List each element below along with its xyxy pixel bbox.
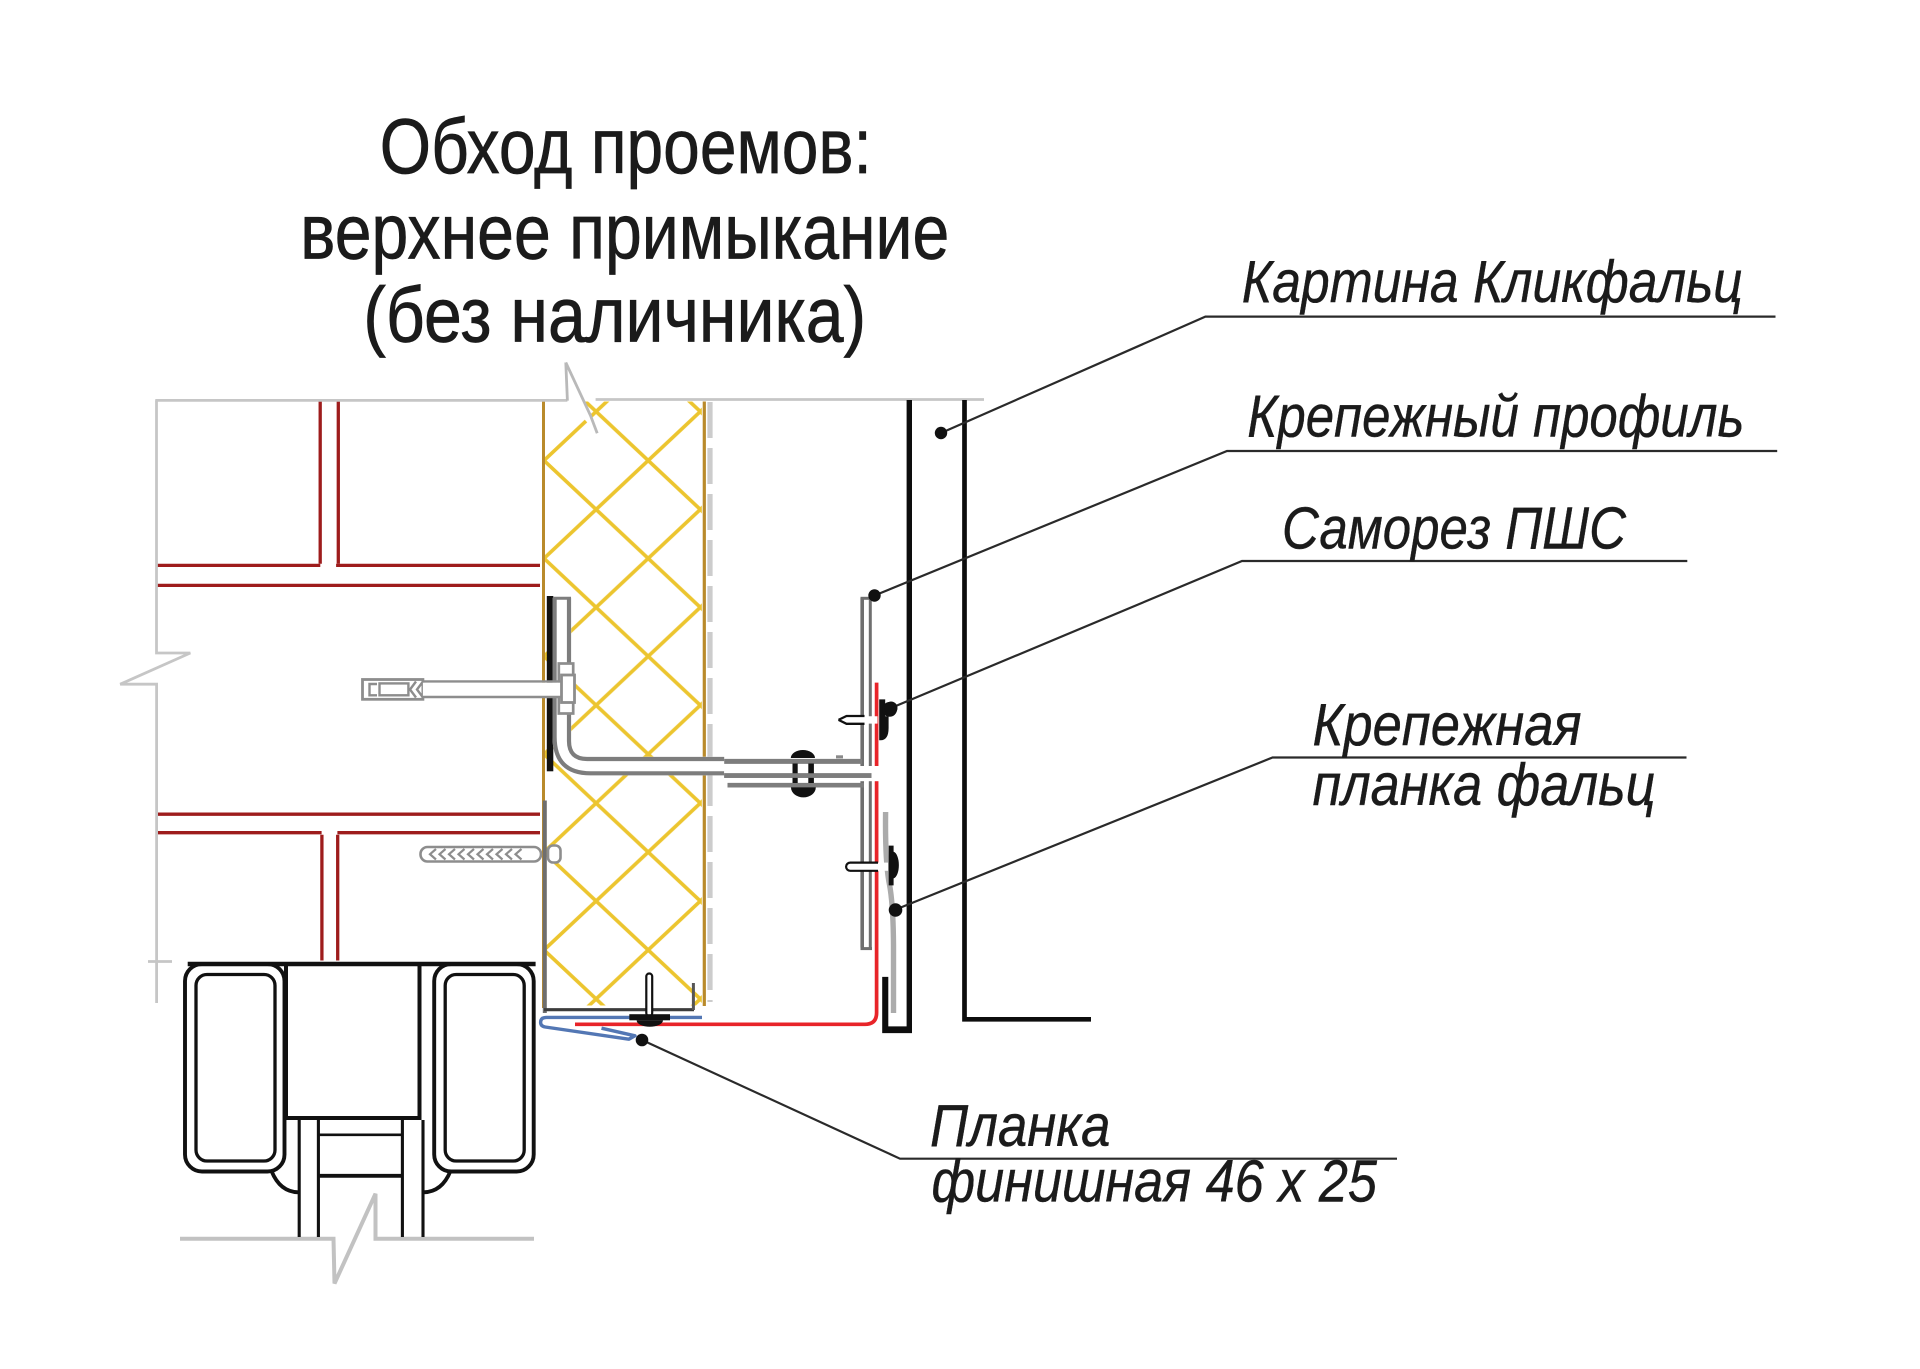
svg-text:планка фальц: планка фальц (1313, 752, 1656, 818)
svg-text:Саморез ПШС: Саморез ПШС (1282, 495, 1626, 561)
svg-text:Крепежная: Крепежная (1313, 692, 1582, 758)
svg-text:(без наличника): (без наличника) (363, 271, 866, 359)
svg-text:Крепежный профиль: Крепежный профиль (1247, 384, 1744, 450)
svg-text:верхнее примыкание: верхнее примыкание (300, 187, 949, 275)
svg-text:Обход проемов:: Обход проемов: (380, 102, 872, 190)
svg-text:финишная 46 x 25: финишная 46 x 25 (932, 1149, 1378, 1215)
svg-text:Картина Кликфальц: Картина Кликфальц (1242, 249, 1743, 315)
